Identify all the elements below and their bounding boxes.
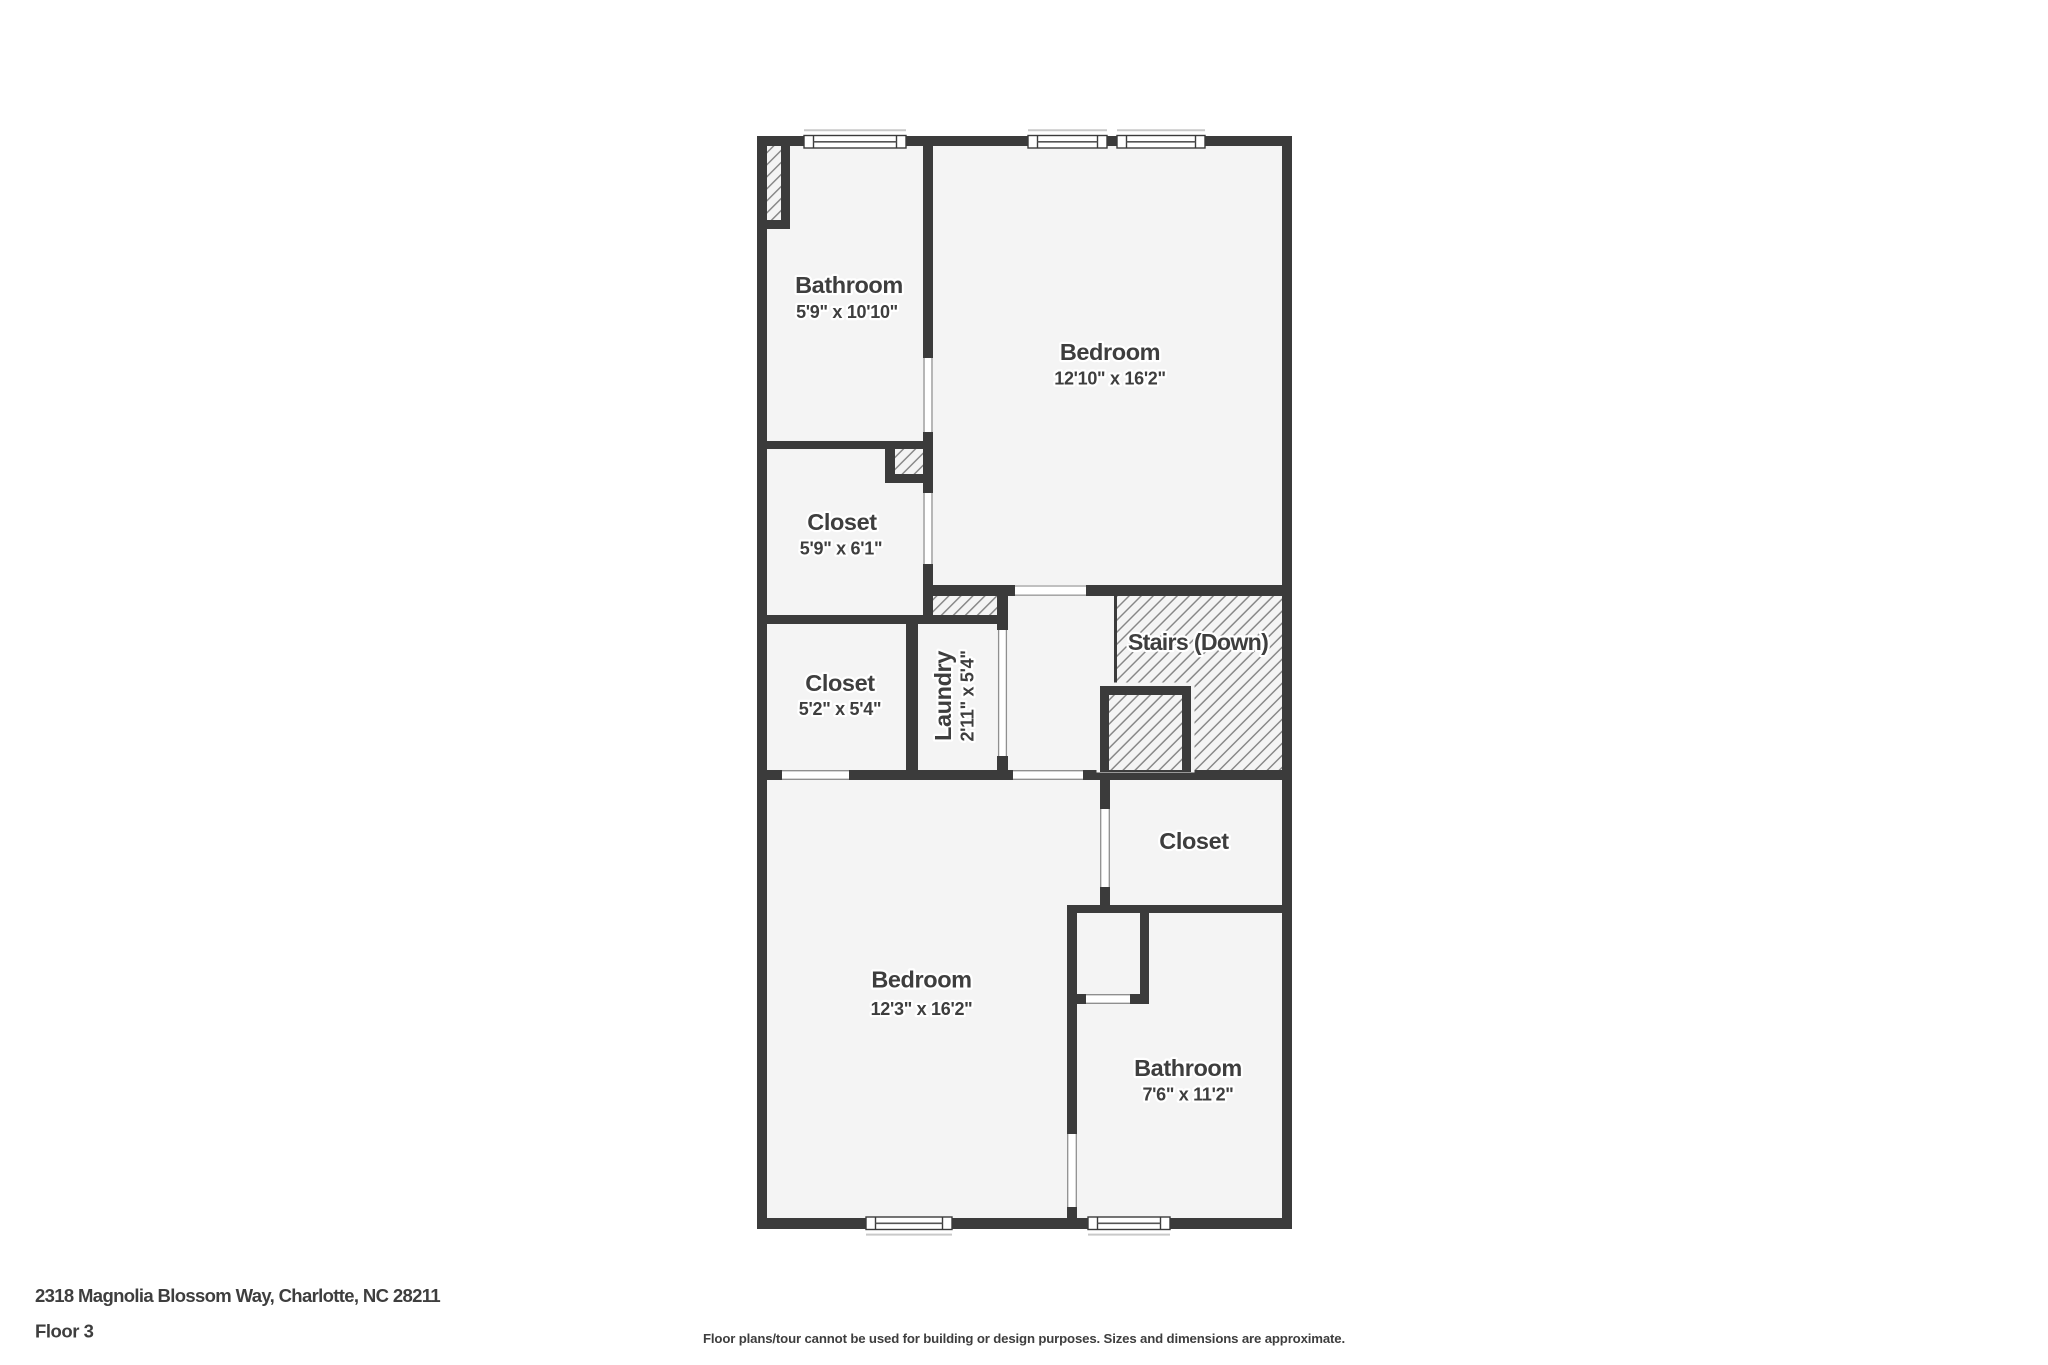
svg-text:Bedroom: Bedroom [871,967,971,993]
svg-text:Stairs (Down): Stairs (Down) [1128,629,1268,655]
svg-text:2'11" x 5'4": 2'11" x 5'4" [958,650,978,741]
svg-text:5'2" x 5'4": 5'2" x 5'4" [799,699,881,719]
svg-text:Laundry: Laundry [930,651,956,741]
svg-text:Floor plans/tour cannot be use: Floor plans/tour cannot be used for buil… [703,1331,1345,1346]
svg-text:5'9" x 10'10": 5'9" x 10'10" [796,302,898,322]
svg-text:12'3" x 16'2": 12'3" x 16'2" [871,999,973,1019]
svg-text:2318 Magnolia Blossom Way, Cha: 2318 Magnolia Blossom Way, Charlotte, NC… [35,1285,440,1306]
svg-text:Closet: Closet [805,670,875,696]
svg-text:Bedroom: Bedroom [1060,339,1160,365]
svg-text:Closet: Closet [807,509,877,535]
svg-text:12'10" x 16'2": 12'10" x 16'2" [1054,369,1166,389]
svg-text:5'9" x 6'1": 5'9" x 6'1" [800,539,882,559]
svg-text:7'6" x 11'2": 7'6" x 11'2" [1142,1085,1233,1105]
svg-text:Bathroom: Bathroom [1134,1055,1242,1081]
svg-text:Closet: Closet [1159,828,1229,854]
svg-text:Bathroom: Bathroom [795,272,903,298]
svg-text:Floor 3: Floor 3 [35,1321,94,1342]
